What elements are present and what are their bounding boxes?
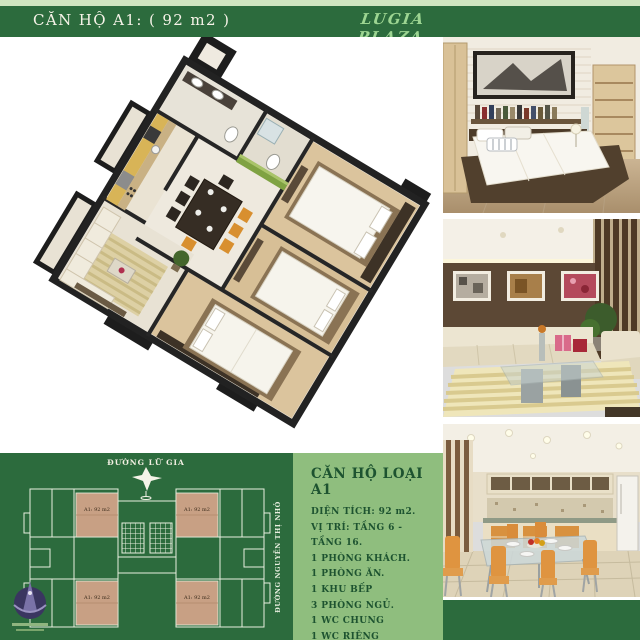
gift-box-red [573,339,587,352]
wall-art [453,271,599,301]
detail-line-bedrooms: 3 PHÒNG NGỦ. [311,599,437,615]
floor-plan-3d [0,37,443,453]
living-room-photo [443,219,640,417]
unit-label: A1: 92 m2 [183,507,210,513]
elevator-core [122,523,144,553]
lucia-logo [12,581,48,631]
detail-line-wc-private: 1 WC RIÊNG [311,630,437,640]
building-outline [24,489,270,627]
bedroom-photo [443,37,640,213]
detail-line-location: VỊ TRÍ: TẦNG 6 - TẦNG 16. [311,521,437,552]
unit-details-title: CĂN HỘ LOẠI A1 [311,466,437,498]
detail-line-kitchen: 1 KHU BẾP [311,583,437,599]
street-label-top: ĐƯỜNG LỮ GIA [107,458,185,467]
unit-label: A1: 92 m2 [183,595,210,601]
detail-line-dining: 1 PHÒNG ĂN. [311,567,437,583]
fridge [617,476,638,551]
counter [483,518,617,523]
north-compass-icon [132,467,162,500]
backsplash [487,498,613,518]
detail-line-living: 1 PHÒNG KHÁCH. [311,552,437,568]
unit-label: A1: 92 m2 [83,507,110,513]
brochure-page: CĂN HỘ A1: ( 92 m2 ) LUGIA PLAZA [0,0,640,640]
kitchen-photo [443,424,640,597]
unit-label: A1: 92 m2 [83,595,110,601]
elevator-core [150,523,172,553]
detail-line-area: DIỆN TÍCH: 92 m2. [311,505,437,521]
street-label-right: ĐƯỜNG NGUYỄN THỊ NHỎ [272,501,282,613]
site-plan-panel: ĐƯỜNG LỮ GIA [0,453,293,640]
floor-plan-area [0,37,443,453]
detail-line-wc-shared: 1 WC CHUNG [311,614,437,630]
unit-details-panel: CĂN HỘ LOẠI A1 DIỆN TÍCH: 92 m2. VỊ TRÍ:… [293,453,443,640]
page-title: CĂN HỘ A1: ( 92 m2 ) [33,11,230,29]
table-lamp [571,124,581,134]
bottom-accent-strip [443,600,640,640]
header-bar: CĂN HỘ A1: ( 92 m2 ) LUGIA PLAZA [0,6,640,37]
